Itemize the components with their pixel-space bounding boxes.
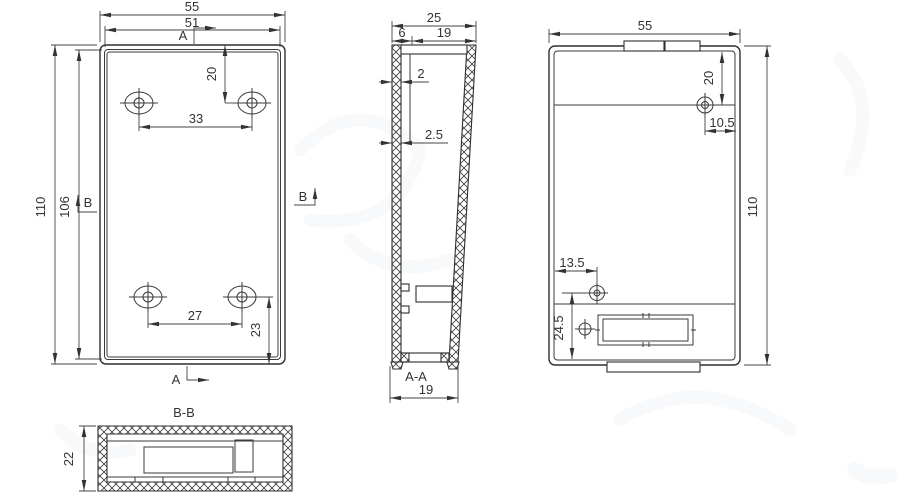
dim-front-hole-spacing-bottom: 27 — [148, 308, 242, 328]
mounting-hole-top-left — [120, 88, 158, 118]
dim-label: 19 — [419, 382, 433, 397]
dim-aa-lid-body: 6 19 — [392, 25, 476, 45]
section-marker-a-bottom: A — [172, 366, 209, 387]
back-snap-tab-bottom — [607, 362, 700, 372]
back-snap-tab-top-1 — [624, 41, 664, 51]
dim-front-width-inner: 51 — [105, 15, 280, 47]
aa-left-wall — [392, 45, 401, 362]
dim-aa-wall-top: 2 — [379, 66, 429, 82]
section-label: A — [179, 28, 188, 43]
back-outer-outline — [549, 46, 740, 365]
dim-label: 55 — [638, 18, 652, 33]
dim-label: 27 — [188, 308, 202, 323]
aa-boss — [416, 286, 452, 302]
section-bb-title: B-B — [173, 405, 195, 420]
dim-label: 13.5 — [559, 255, 584, 270]
dim-label: 10.5 — [709, 115, 734, 130]
dim-back-width: 55 — [549, 18, 740, 43]
section-label: A — [172, 372, 181, 387]
dim-back-boss-left-offset: 13.5 — [555, 255, 597, 287]
aa-top-wall — [401, 45, 467, 54]
dim-front-hole-top-offset: 20 — [204, 45, 240, 103]
dim-label: 20 — [204, 67, 219, 81]
dim-back-boss-bottom-offset: 24.5 — [551, 293, 590, 359]
dim-label: 22 — [61, 452, 76, 466]
mounting-hole-bottom-left — [129, 282, 167, 312]
dim-label: 110 — [33, 197, 48, 218]
front-view: 55 51 110 106 20 33 — [33, 0, 315, 387]
back-snap-tab-top-2 — [665, 41, 700, 51]
drawing-sheet: 55 51 110 106 20 33 — [0, 0, 900, 500]
aa-foot-left — [391, 362, 403, 369]
dim-back-hole-right-offset: 10.5 — [705, 110, 736, 135]
bb-bottom-ribs — [107, 477, 283, 482]
dim-label: 20 — [701, 71, 716, 85]
section-label: B — [84, 195, 93, 210]
section-view-aa: 25 6 19 2 2.5 A-A 19 — [379, 10, 476, 403]
aa-ledge-lower — [401, 306, 409, 313]
dim-label: 33 — [189, 111, 203, 126]
mounting-hole-bottom-right — [223, 282, 261, 312]
dim-label: 19 — [437, 25, 451, 40]
dim-label: 23 — [248, 323, 263, 337]
dim-front-height-inner: 106 — [57, 50, 102, 359]
dim-front-hole-spacing-top: 33 — [139, 111, 252, 131]
back-slot — [595, 313, 696, 347]
back-view: 55 110 20 10.5 13.5 24.5 — [549, 18, 771, 372]
dim-label: 6 — [398, 25, 405, 40]
aa-foot-right — [447, 362, 459, 369]
back-slot-inner — [603, 319, 688, 341]
bb-side-rib-rect — [235, 440, 253, 472]
dim-back-height: 110 — [744, 46, 771, 365]
technical-drawing-canvas: 55 51 110 106 20 33 — [0, 0, 900, 500]
aa-bottom-wall-hatch-right — [441, 353, 449, 362]
section-marker-b-right: B — [294, 188, 315, 205]
dim-label: 110 — [745, 197, 760, 218]
aa-right-wall — [449, 45, 476, 362]
dim-label: 55 — [185, 0, 199, 14]
dim-label: 2 — [417, 66, 424, 81]
bb-wall-band — [98, 426, 292, 491]
dim-label: 106 — [57, 196, 72, 218]
dim-label: 2.5 — [425, 127, 443, 142]
aa-bottom-wall-hatch-left — [401, 353, 409, 362]
back-slot-ticks — [595, 313, 696, 347]
back-locator-cross — [575, 319, 595, 339]
section-marker-b-left: B — [78, 195, 97, 212]
bb-component-rect — [144, 447, 233, 473]
dim-label: 24.5 — [551, 315, 566, 340]
dim-label: 25 — [427, 10, 441, 25]
dim-front-hole-bottom-offset: 23 — [248, 297, 273, 364]
aa-ledge-upper — [401, 284, 409, 291]
section-label: B — [299, 189, 308, 204]
